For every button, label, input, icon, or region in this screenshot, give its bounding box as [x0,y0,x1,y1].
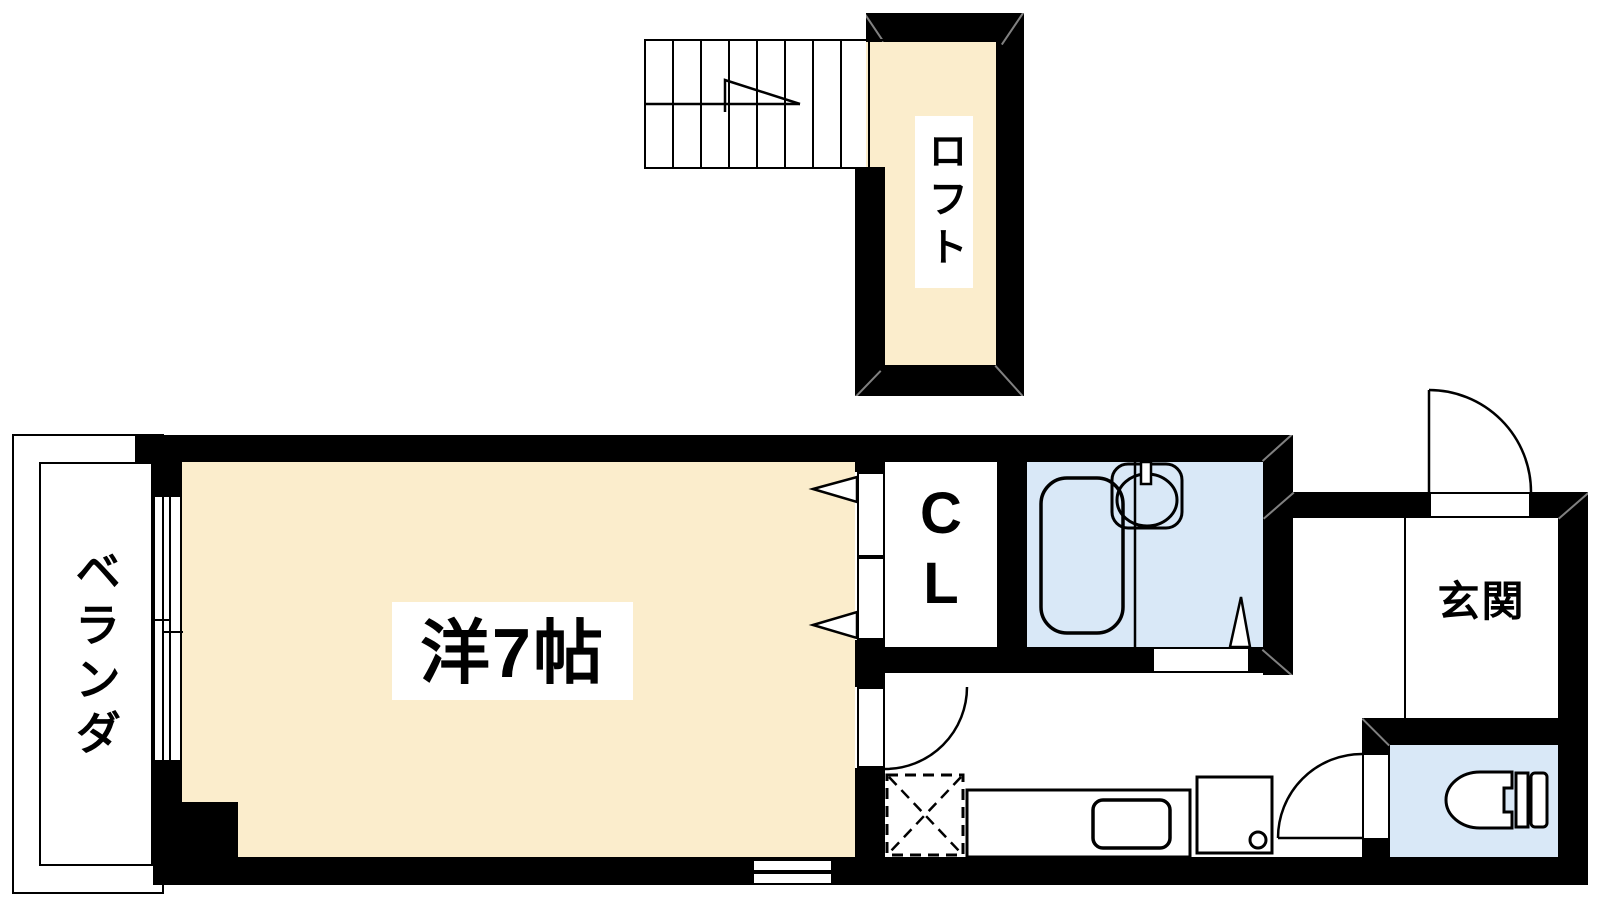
wall-outer-right [1558,492,1588,885]
bathroom-floor [1027,462,1263,647]
entry-door-arc [1429,390,1531,492]
closet-label-l: L [885,548,997,618]
vent-window-bottom-a [752,859,833,872]
main-room-label: 洋7帖 [392,598,633,696]
closet-bifold-panel-top [857,472,885,557]
bath-doorway [1152,647,1250,673]
loft-wall-right [996,13,1024,396]
floorplan-canvas: ロフト 洋7帖 ベランダ C L 玄関 [0,0,1600,900]
wall-cl-bath [997,462,1027,647]
stair-treads [673,40,869,168]
wall-step-bottom-left [178,802,238,857]
stair-direction-arrow [725,80,800,112]
veranda-label: ベランダ [55,450,135,860]
loft-wall-left [855,168,885,396]
vent-window-bottom-b [752,872,833,885]
kitchen-sink [1093,800,1170,848]
laundry-space [1197,777,1272,853]
window-opening-left [155,497,180,760]
toilet-doorway [1362,753,1390,840]
stairs [645,40,885,168]
kitchen-fixtures [887,775,1272,857]
closet-bifold-panel-bottom [857,557,885,640]
entry-doorway [1429,492,1531,518]
fridge-space [887,775,963,855]
drain [1250,832,1266,848]
closet-label-c: C [885,478,997,548]
wall-corridor-top [1263,492,1588,518]
kitchen-counter [967,790,1190,857]
wall-bottom [153,857,1588,885]
wall-top [135,435,1293,462]
room-door-arc [885,687,967,769]
room-door-leaf [857,687,885,768]
wall-entrance-bottom [1363,718,1588,745]
toilet-door-arc [1278,754,1362,838]
toilet-floor [1390,745,1558,857]
entrance-label: 玄関 [1405,570,1558,626]
loft-label: ロフト [915,116,973,288]
